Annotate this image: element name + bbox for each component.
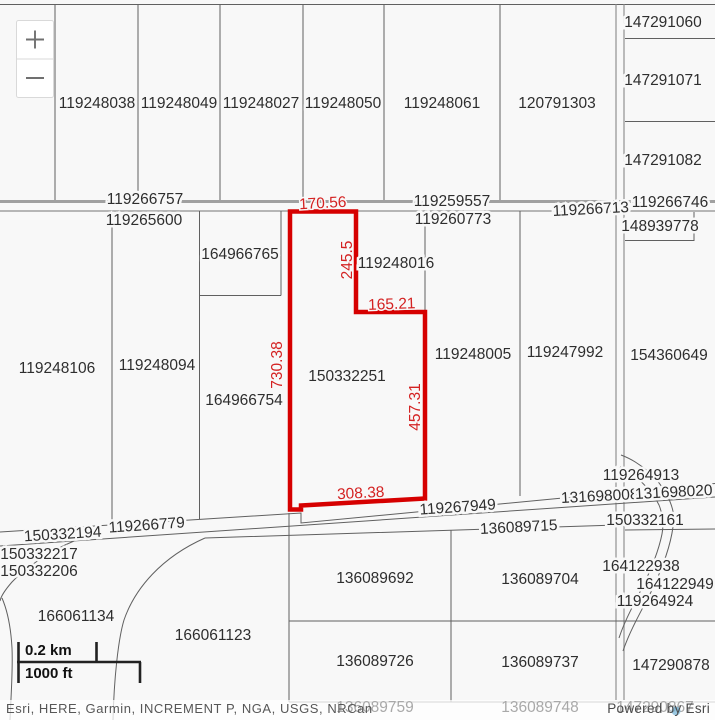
svg-text:154360649: 154360649	[630, 347, 708, 364]
svg-text:119264913: 119264913	[603, 467, 679, 484]
svg-text:166061123: 166061123	[175, 627, 251, 644]
svg-text:457.31: 457.31	[407, 383, 424, 430]
svg-text:119248094: 119248094	[119, 357, 196, 374]
svg-text:308.38: 308.38	[337, 484, 385, 503]
svg-text:150332217: 150332217	[0, 546, 78, 563]
svg-text:119266779: 119266779	[108, 514, 185, 536]
svg-text:119259557: 119259557	[414, 193, 490, 210]
svg-text:245.5: 245.5	[339, 241, 356, 280]
svg-text:131698020: 131698020	[635, 482, 714, 503]
svg-text:Powered by Esri: Powered by Esri	[607, 701, 710, 716]
svg-text:166061134: 166061134	[38, 608, 115, 625]
svg-text:164966765: 164966765	[201, 246, 279, 263]
svg-text:147291060: 147291060	[624, 14, 702, 31]
svg-text:119264924: 119264924	[617, 593, 694, 610]
svg-text:119266746: 119266746	[632, 194, 708, 211]
svg-text:164122949: 164122949	[636, 576, 714, 593]
svg-text:165.21: 165.21	[368, 295, 416, 314]
svg-text:150332251: 150332251	[308, 368, 386, 385]
svg-text:150332206: 150332206	[0, 563, 78, 580]
svg-text:119267949: 119267949	[419, 496, 496, 518]
svg-text:119266757: 119266757	[107, 191, 183, 208]
svg-text:136089704: 136089704	[501, 571, 579, 588]
svg-text:1000 ft: 1000 ft	[25, 665, 73, 682]
svg-text:0.2 km: 0.2 km	[25, 642, 72, 659]
svg-text:119248049: 119248049	[141, 95, 217, 112]
svg-text:119247992: 119247992	[527, 344, 603, 361]
svg-text:150332161: 150332161	[606, 512, 684, 529]
svg-text:119248016: 119248016	[358, 255, 434, 272]
svg-text:119248061: 119248061	[404, 95, 480, 112]
svg-text:164122938: 164122938	[602, 558, 680, 575]
svg-text:136089715: 136089715	[480, 517, 558, 538]
svg-text:147291082: 147291082	[624, 152, 702, 169]
svg-text:119248027: 119248027	[223, 95, 299, 112]
svg-text:136089737: 136089737	[501, 654, 579, 671]
svg-text:119266713: 119266713	[552, 199, 629, 220]
svg-text:119265600: 119265600	[106, 212, 183, 229]
svg-text:131698008: 131698008	[561, 486, 639, 507]
svg-text:147291071: 147291071	[624, 72, 702, 89]
svg-text:136089726: 136089726	[336, 653, 414, 670]
svg-text:119248106: 119248106	[19, 360, 95, 377]
svg-text:119248038: 119248038	[59, 95, 135, 112]
svg-text:170.56: 170.56	[299, 194, 347, 213]
svg-text:147290878: 147290878	[632, 657, 710, 674]
svg-text:730.38: 730.38	[269, 341, 286, 388]
svg-text:150332194: 150332194	[23, 524, 102, 546]
svg-text:164966754: 164966754	[205, 392, 283, 409]
svg-text:136089748: 136089748	[501, 699, 579, 716]
svg-text:148939778: 148939778	[621, 218, 699, 235]
svg-text:136089692: 136089692	[336, 570, 414, 587]
svg-text:119248005: 119248005	[435, 346, 511, 363]
svg-text:Esri, HERE, Garmin, INCREMENT: Esri, HERE, Garmin, INCREMENT P, NGA, US…	[6, 701, 373, 716]
svg-text:119248050: 119248050	[305, 95, 382, 112]
svg-text:119260773: 119260773	[415, 211, 491, 228]
svg-text:120791303: 120791303	[518, 95, 596, 112]
